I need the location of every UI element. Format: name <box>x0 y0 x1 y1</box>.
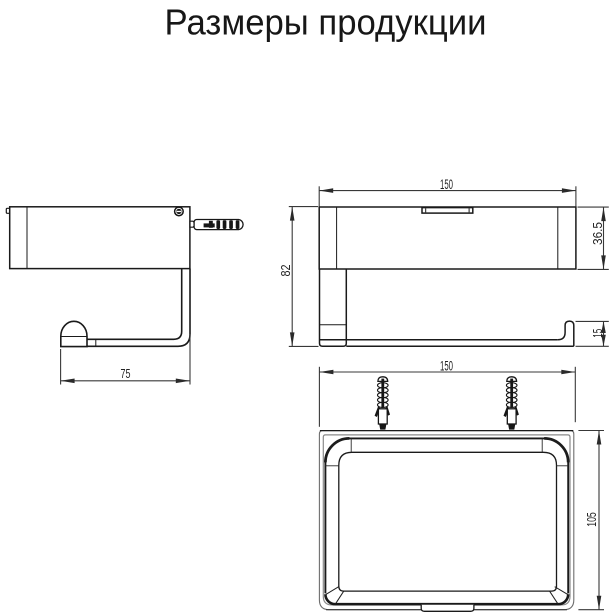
svg-text:82: 82 <box>278 265 293 277</box>
svg-text:150: 150 <box>440 177 453 192</box>
svg-text:105: 105 <box>584 512 599 527</box>
svg-text:75: 75 <box>121 366 131 381</box>
svg-text:Размеры продукции: Размеры продукции <box>165 2 487 43</box>
svg-text:150: 150 <box>440 358 453 373</box>
svg-text:36.5: 36.5 <box>590 222 605 245</box>
svg-text:15: 15 <box>590 329 605 338</box>
